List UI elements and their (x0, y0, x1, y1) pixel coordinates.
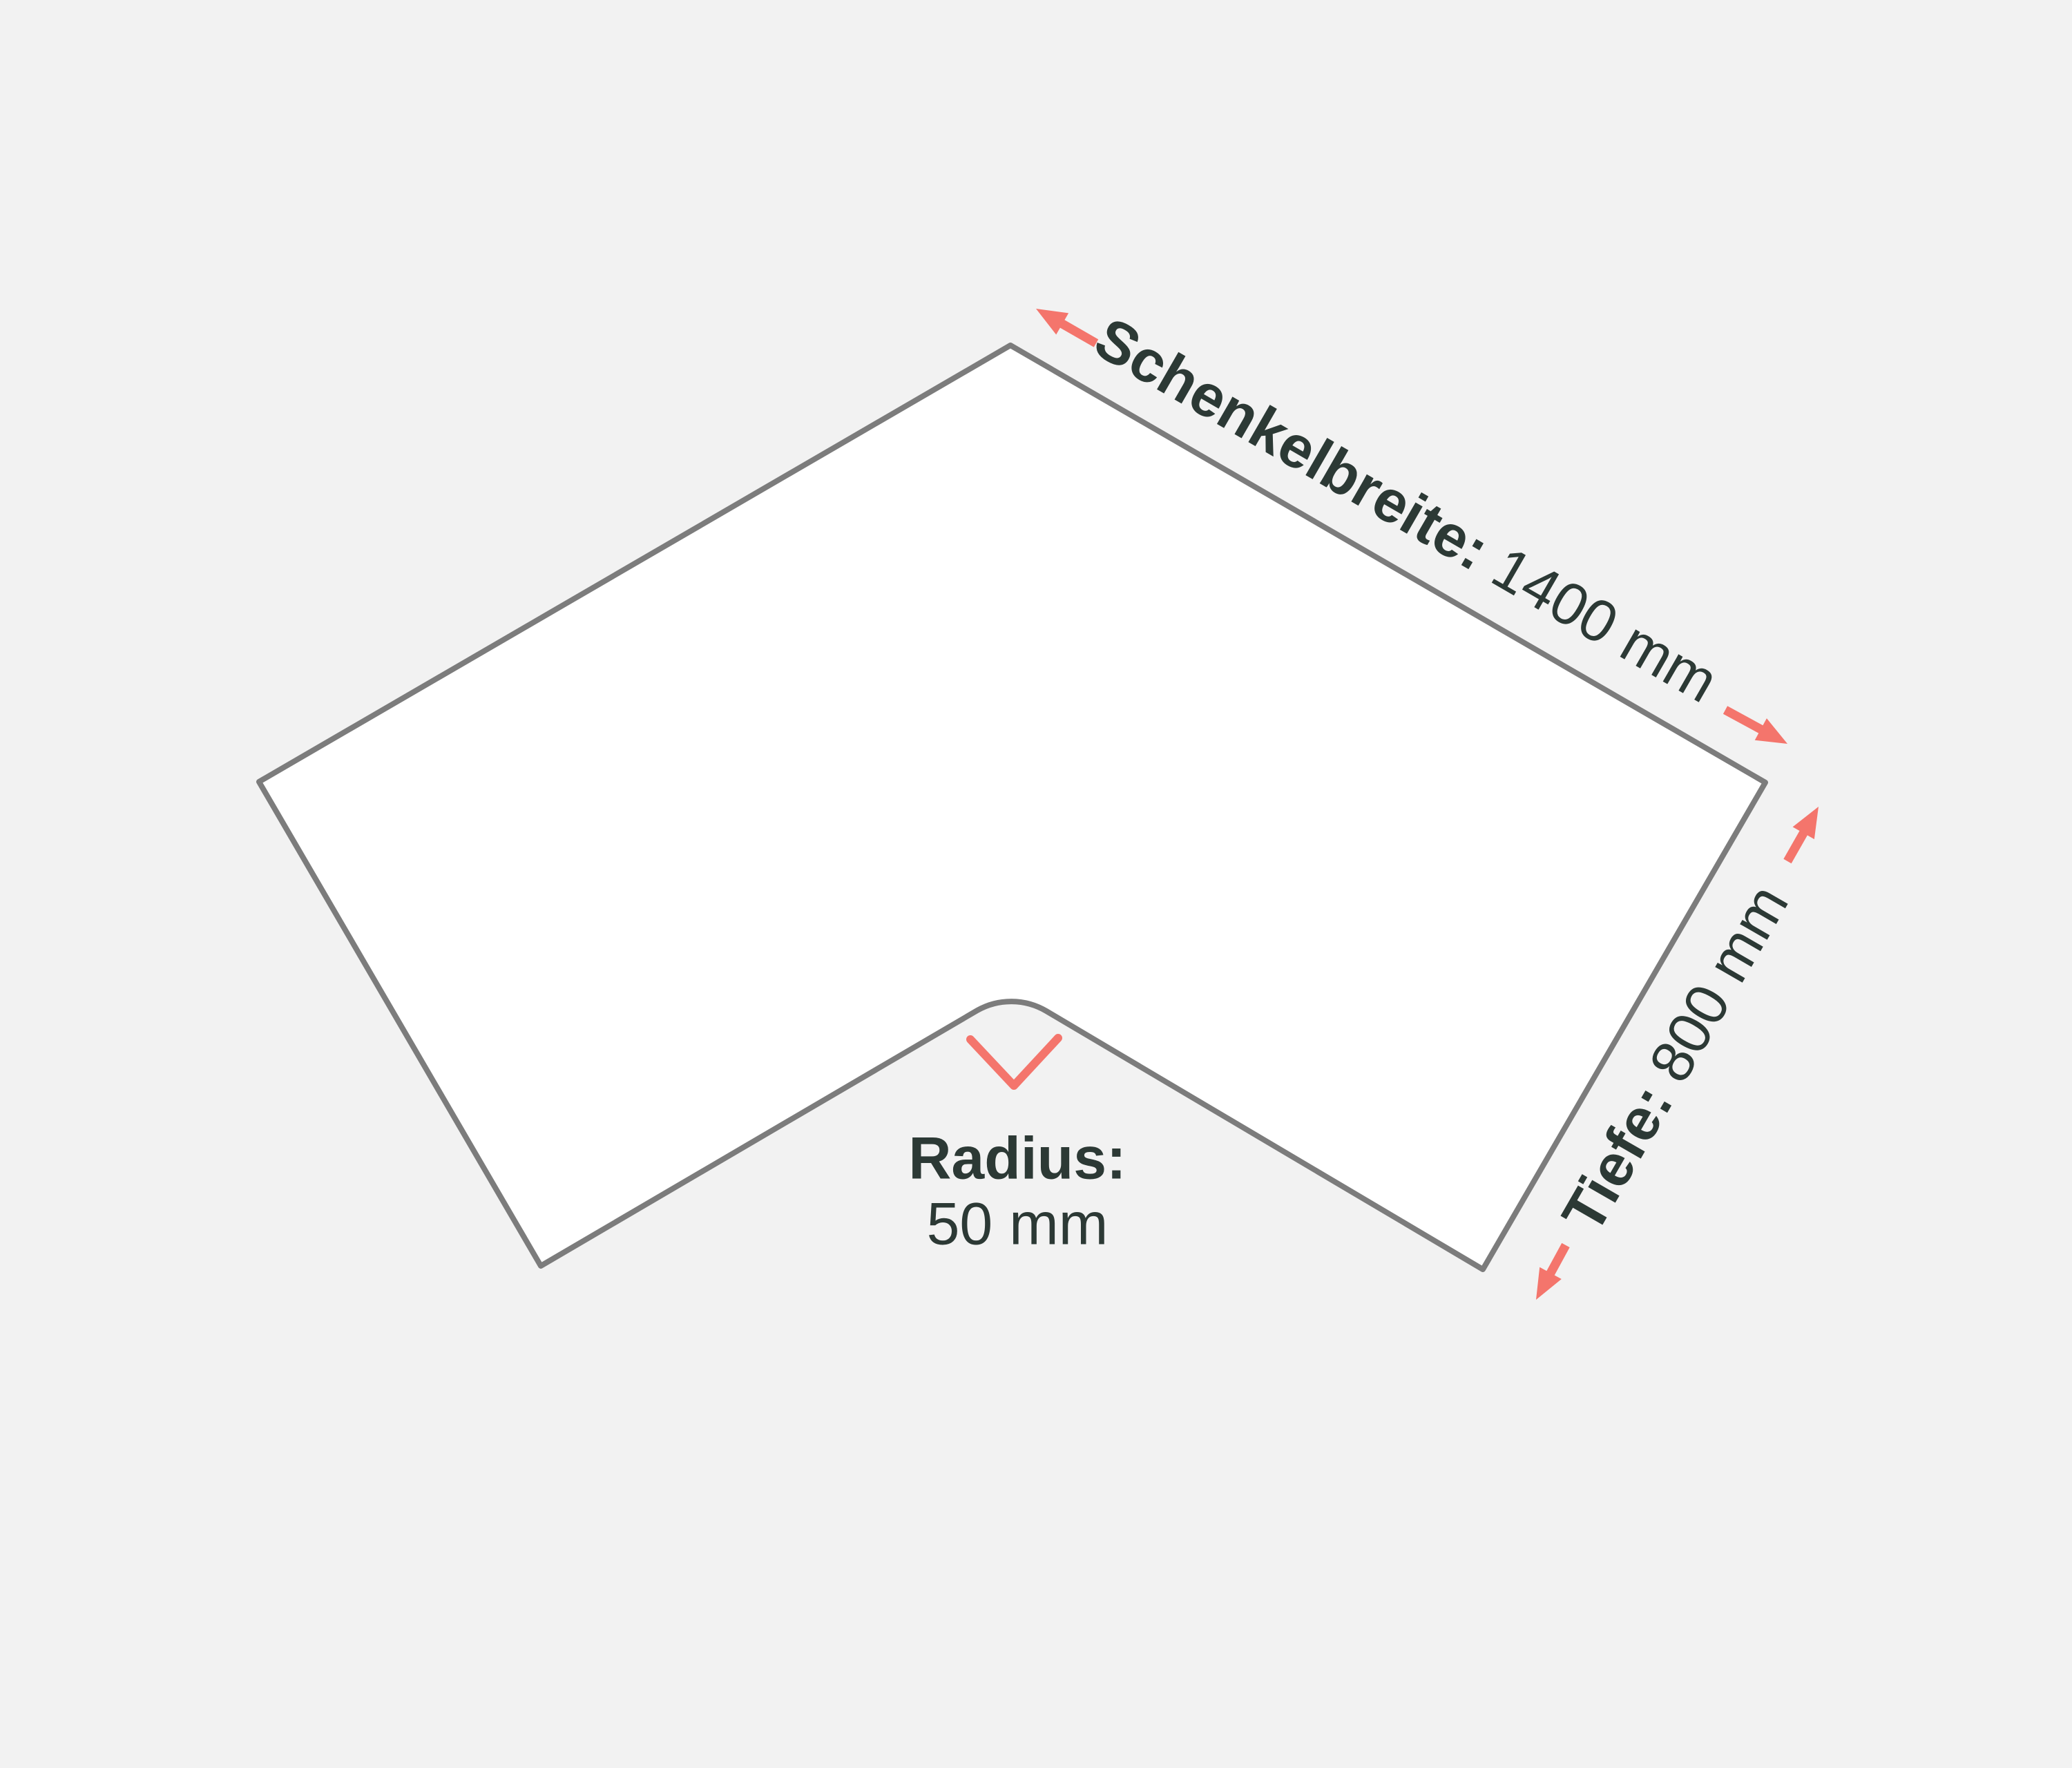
radius-dimension-label: Radius: 50 mm (908, 1126, 1126, 1256)
tiefe-start-arrow (1787, 807, 1819, 861)
radius-chevron-icon (970, 1038, 1058, 1086)
diagram-canvas: Schenkelbreite: 1400 mm Tiefe: 800 mm Ra… (0, 0, 2072, 1768)
tiefe-end-arrow (1536, 1245, 1566, 1300)
schenkelbreite-end-arrow (1725, 710, 1787, 744)
radius-label-value: 50 mm (908, 1191, 1126, 1257)
schenkelbreite-start-arrow (1036, 309, 1096, 343)
radius-label-name: Radius: (908, 1126, 1126, 1191)
